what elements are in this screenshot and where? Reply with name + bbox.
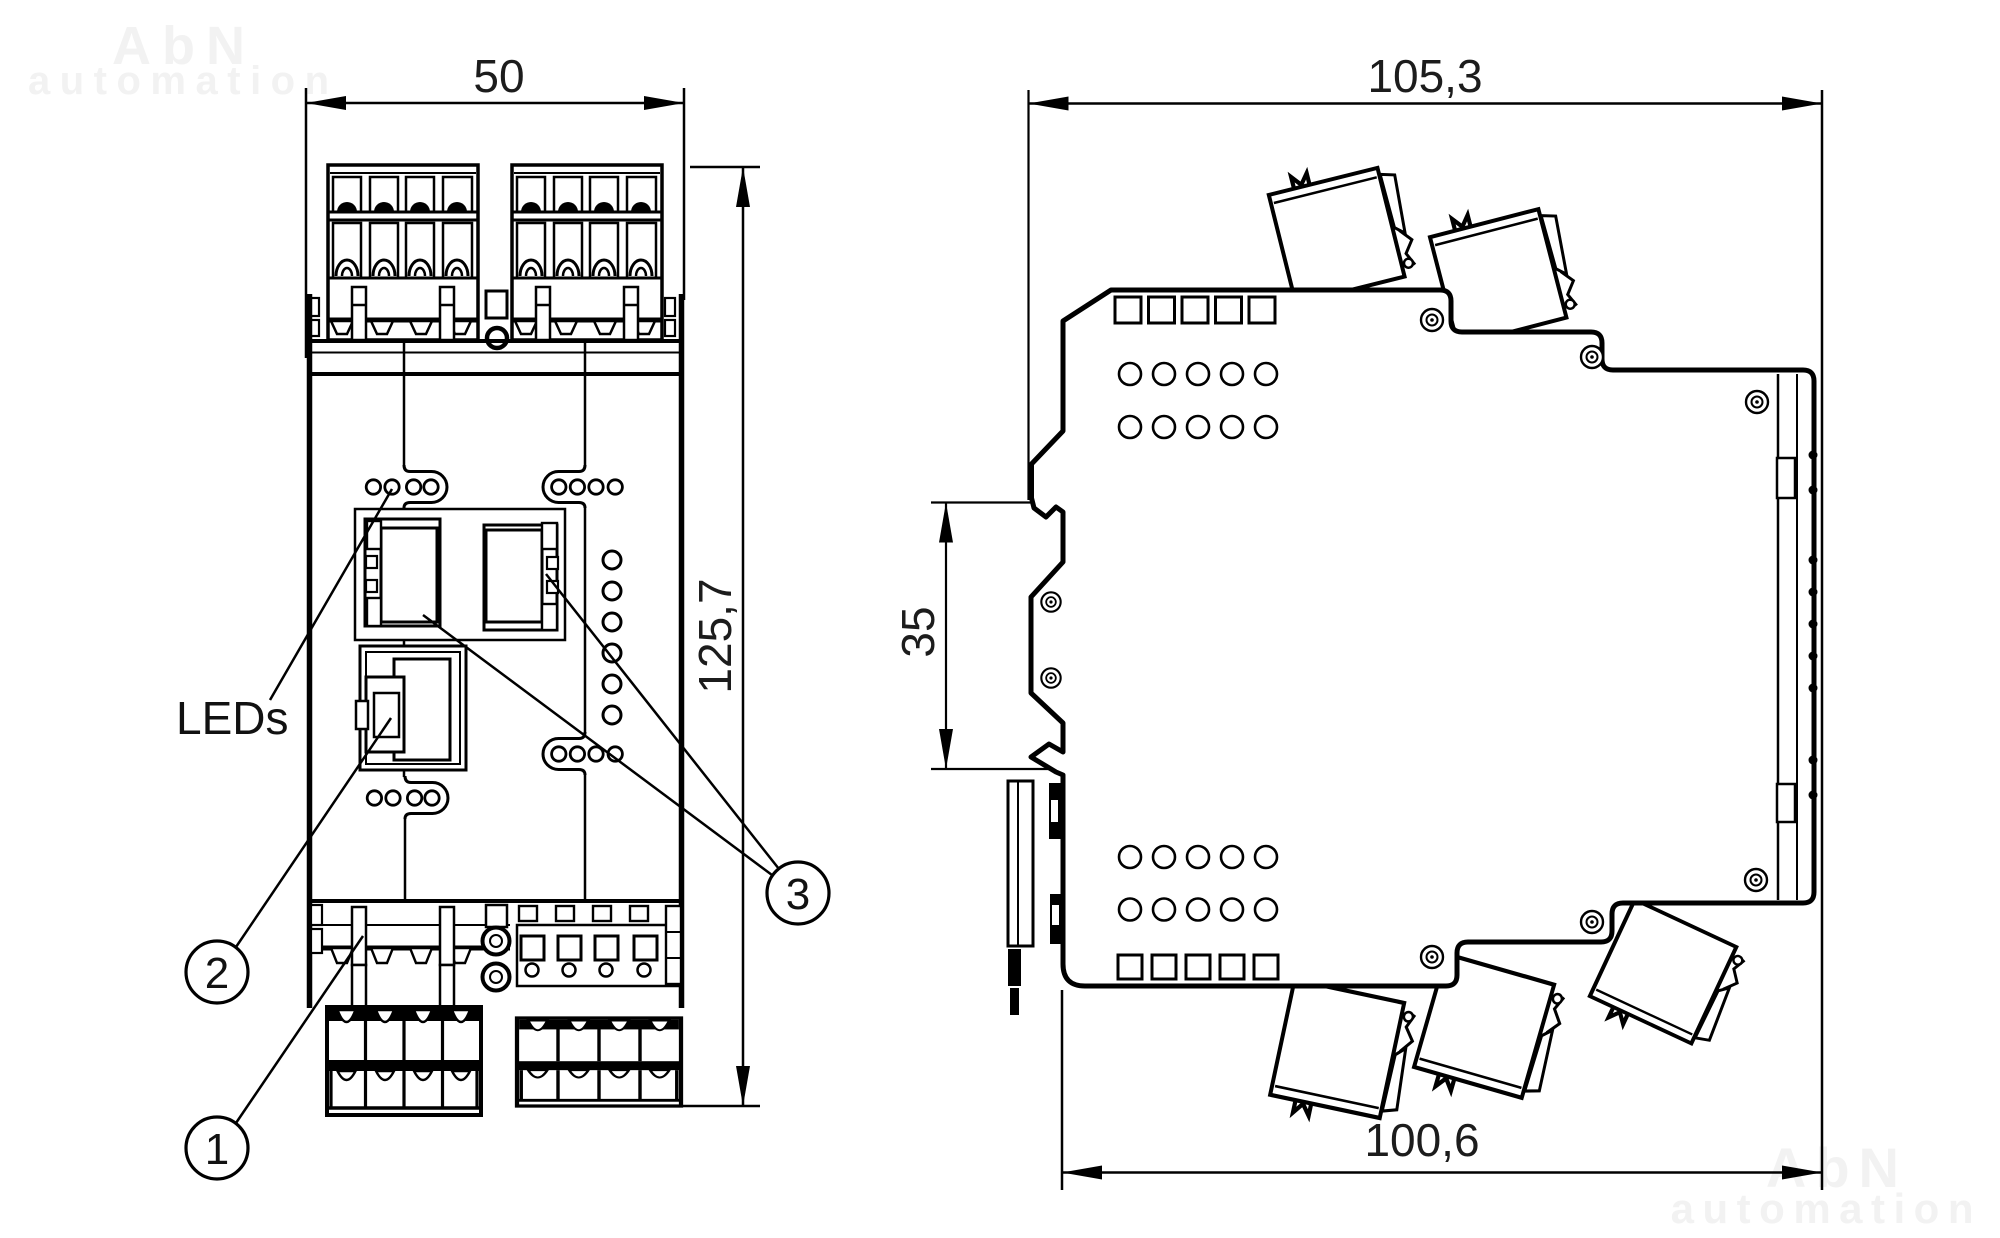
svg-text:1: 1 bbox=[205, 1125, 229, 1174]
svg-text:3: 3 bbox=[786, 870, 810, 919]
svg-text:LEDs: LEDs bbox=[176, 692, 288, 744]
svg-text:105,3: 105,3 bbox=[1367, 50, 1482, 102]
svg-text:automation: automation bbox=[1671, 1185, 1982, 1232]
svg-text:125,7: 125,7 bbox=[689, 578, 741, 693]
svg-text:50: 50 bbox=[473, 50, 524, 102]
svg-text:100,6: 100,6 bbox=[1364, 1114, 1479, 1166]
svg-text:2: 2 bbox=[205, 949, 229, 998]
svg-text:automation: automation bbox=[28, 59, 339, 103]
svg-text:35: 35 bbox=[892, 606, 944, 657]
